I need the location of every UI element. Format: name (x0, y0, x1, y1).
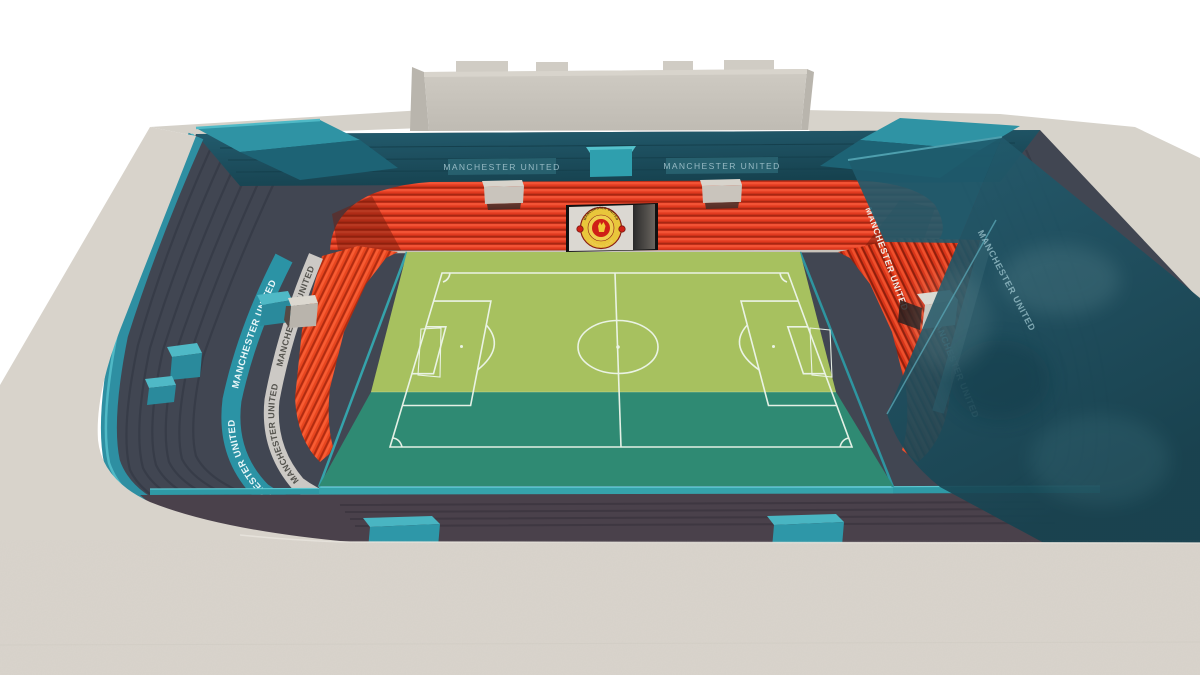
stadium-scene: MANCHESTER UNITED MANCHESTER UNITED MANC… (0, 0, 1200, 675)
screen-wall (410, 60, 814, 131)
roof-block (456, 61, 508, 73)
far-left-sign-text: MANCHESTER UNITED (443, 162, 560, 172)
far-right-sign-text: MANCHESTER UNITED (663, 161, 780, 171)
screen-wall-face (424, 69, 807, 131)
stadium-render: MANCHESTER UNITED MANCHESTER UNITED MANC… (0, 0, 1200, 675)
pitch-platform (319, 252, 893, 496)
club-crest-box: MANCHESTER UNITED FOOTBALL CLUB (566, 203, 658, 252)
far-entrance-box (590, 149, 632, 177)
